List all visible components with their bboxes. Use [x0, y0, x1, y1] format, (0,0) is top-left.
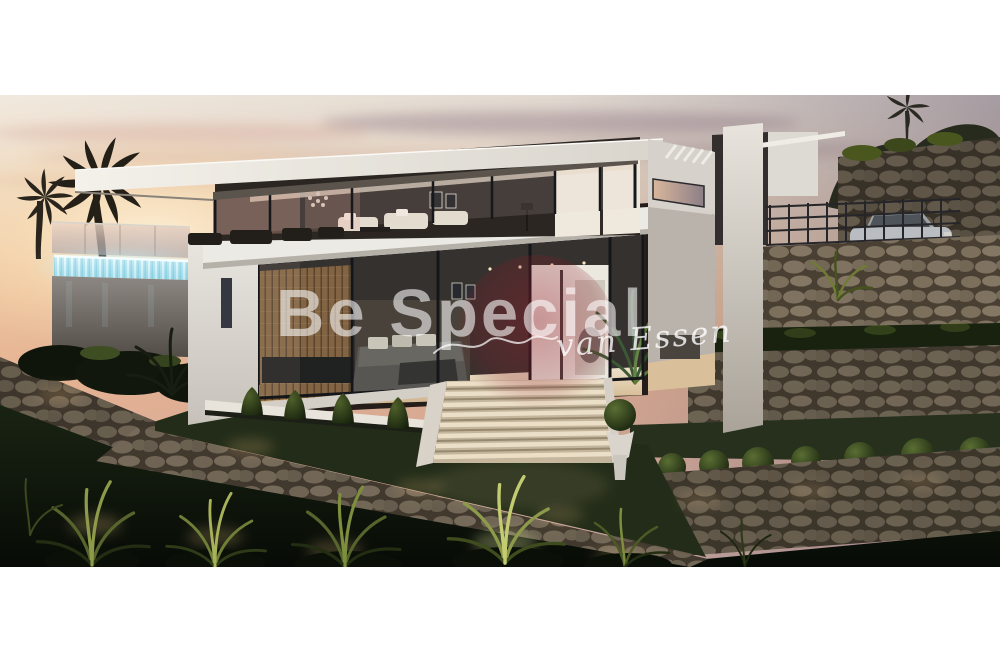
pergola-section: [648, 139, 715, 391]
pool-wall: [52, 276, 188, 357]
infinity-pool: [30, 222, 210, 357]
page: Be Special van Essen: [0, 0, 1000, 667]
staircase: [416, 377, 622, 467]
slot-window: [221, 278, 232, 328]
villa-scene: [0, 95, 1000, 567]
white-pier: [723, 123, 763, 433]
villa-photo: Be Special van Essen: [0, 95, 1000, 567]
stone-wall-driveway: [758, 235, 1000, 333]
terrace-furniture: [660, 335, 700, 359]
